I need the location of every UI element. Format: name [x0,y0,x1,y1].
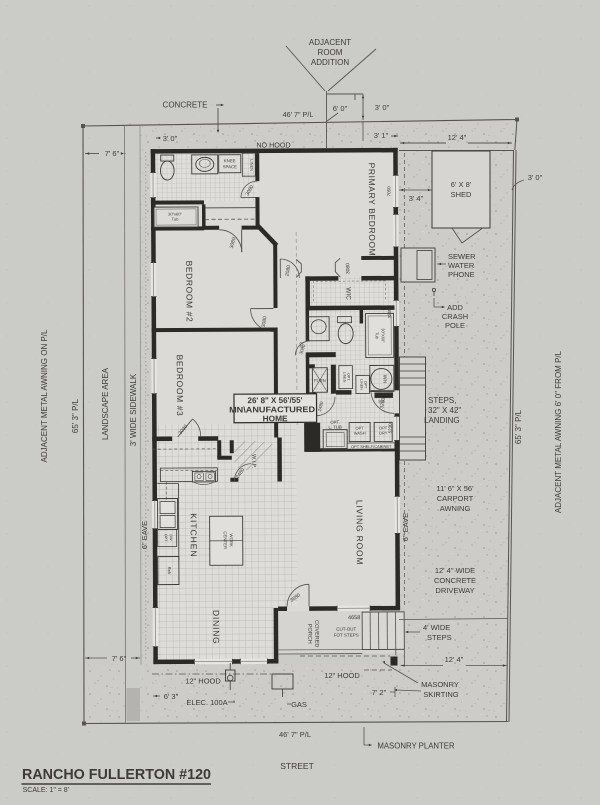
svg-text:BEDROOM #3: BEDROOM #3 [175,355,185,417]
svg-text:12' 4": 12' 4" [448,133,467,142]
svg-text:POLE: POLE [445,321,465,330]
svg-text:LINEN: LINEN [342,372,346,383]
svg-text:CUT-OUT: CUT-OUT [336,627,356,632]
svg-text:GAS: GAS [291,700,307,709]
svg-text:MASONRY PLANTER: MASONRY PLANTER [377,742,455,751]
svg-text:CRASH: CRASH [442,312,468,321]
svg-text:46' 7" P/L: 46' 7" P/L [283,110,314,119]
svg-text:4658: 4658 [348,615,360,621]
svg-text:LANDING: LANDING [424,416,460,425]
svg-text:32" X 42": 32" X 42" [428,406,461,415]
svg-text:6" EAVE: 6" EAVE [140,521,149,549]
svg-text:5230: 5230 [388,423,393,434]
svg-text:PHONE: PHONE [448,270,475,279]
svg-text:65' 3" P/L: 65' 3" P/L [514,409,523,444]
svg-text:3' 4": 3' 4" [409,194,424,203]
svg-text:Refr: Refr [167,567,172,576]
svg-text:WORK: WORK [229,534,234,548]
svg-text:65' 3" P/L: 65' 3" P/L [71,398,80,433]
svg-text:WH: WH [381,375,387,384]
svg-text:AWNING: AWNING [440,504,471,513]
svg-text:ADJACENT METAL AWNING ON P/L: ADJACENT METAL AWNING ON P/L [40,329,49,462]
svg-text:PORCH: PORCH [306,624,312,644]
svg-text:11' 6" X 56': 11' 6" X 56' [436,484,474,493]
svg-text:6" EAVE: 6" EAVE [401,513,410,541]
svg-text:CONCRETE: CONCRETE [434,576,476,585]
svg-text:PRIMARY BEDROOM: PRIMARY BEDROOM [367,163,377,257]
svg-text:SEWER: SEWER [448,252,476,261]
svg-text:LINEN: LINEN [249,159,254,171]
svg-text:6' X 8': 6' X 8' [451,180,472,189]
svg-text:MASONRY: MASONRY [421,680,459,689]
svg-text:BEDROOM #2: BEDROOM #2 [184,261,194,323]
svg-text:NO HOOD: NO HOOD [256,141,290,150]
svg-text:MN\ANUFACTURED: MN\ANUFACTURED [229,405,315,414]
svg-text:SCALE: 1" = 8': SCALE: 1" = 8' [23,787,69,794]
svg-text:ADJACENT: ADJACENT [309,38,351,47]
svg-text:3250: 3250 [387,308,392,319]
svg-text:SKIRTING: SKIRTING [423,690,458,699]
svg-text:7' 6": 7' 6" [112,654,127,663]
svg-text:12' 4": 12' 4" [445,655,464,664]
svg-text:WIC: WIC [344,287,351,300]
svg-text:W.I.P.: W.I.P. [250,454,256,468]
svg-text:STREET: STREET [280,761,314,771]
svg-text:3080: 3080 [345,263,351,274]
svg-text:LIVING ROOM: LIVING ROOM [355,500,365,566]
svg-text:12" HOOD: 12" HOOD [324,671,360,680]
svg-text:26' 8" X 56'/55': 26' 8" X 56'/55' [247,396,302,405]
svg-text:7050: 7050 [386,186,391,197]
svg-text:3' 0": 3' 0" [528,173,543,182]
svg-text:COVERED: COVERED [313,620,319,647]
svg-text:DRIVEWAY: DRIVEWAY [435,586,474,595]
svg-text:SHED: SHED [451,190,472,199]
svg-text:SPACE: SPACE [223,164,237,169]
svg-text:ADD: ADD [447,303,463,312]
svg-text:12' 4" WIDE: 12' 4" WIDE [435,566,475,575]
svg-text:FURN: FURN [314,378,326,383]
svg-text:STEPS: STEPS [427,633,452,642]
svg-text:DINING: DINING [211,610,221,645]
svg-text:CR: CR [299,342,304,348]
svg-text:LANDSCAPE AREA: LANDSCAPE AREA [101,367,110,440]
svg-text:CONCRETE: CONCRETE [163,101,208,110]
svg-text:HOME: HOME [263,414,289,423]
svg-text:KITCHEN: KITCHEN [189,513,199,557]
svg-text:OPT: OPT [164,534,168,542]
svg-text:46' 7" P/L: 46' 7" P/L [279,730,311,739]
svg-text:6' 3": 6' 3" [164,692,179,701]
svg-text:WATER: WATER [448,261,475,270]
svg-text:3' 0": 3' 0" [375,103,390,112]
svg-text:ADJACENT METAL AWNING 6' 0" FR: ADJACENT METAL AWNING 6' 0" FROM P/L [554,350,563,513]
svg-text:4' WIDE: 4' WIDE [423,623,450,632]
svg-text:3' 0": 3' 0" [163,134,178,143]
svg-text:RANCHO FULLERTON #120: RANCHO FULLERTON #120 [22,767,211,783]
svg-text:CARPORT: CARPORT [437,494,474,503]
svg-text:3' 1": 3' 1" [374,131,389,140]
svg-text:ADDITION: ADDITION [311,58,349,67]
svg-text:ELEC. 100A: ELEC. 100A [186,698,227,707]
svg-text:DRY: DRY [379,430,388,435]
svg-text:30"X60": 30"X60" [381,328,386,343]
svg-text:7' 6": 7' 6" [105,149,120,158]
svg-text:DW: DW [169,535,173,542]
svg-text:Tub: Tub [172,216,180,221]
svg-text:ROOM: ROOM [318,48,343,57]
svg-text:L. TUB: L. TUB [328,425,341,430]
svg-text:STEPS,: STEPS, [428,396,456,405]
svg-text:CENTER: CENTER [223,531,228,549]
svg-text:OPT SHELF/CABINET: OPT SHELF/CABINET [351,444,392,449]
svg-text:3' WIDE SIDEWALK: 3' WIDE SIDEWALK [129,373,138,446]
svg-text:12" HOOD: 12" HOOD [185,677,221,686]
svg-text:FOT STEPS: FOT STEPS [334,633,359,638]
svg-text:6' 0": 6' 0" [333,104,348,113]
svg-text:KNEE: KNEE [224,158,236,163]
svg-text:Tub: Tub [375,332,380,340]
svg-text:WASH: WASH [354,431,366,436]
svg-text:7' 2": 7' 2" [372,688,387,697]
svg-text:LINEN: LINEN [359,379,363,390]
